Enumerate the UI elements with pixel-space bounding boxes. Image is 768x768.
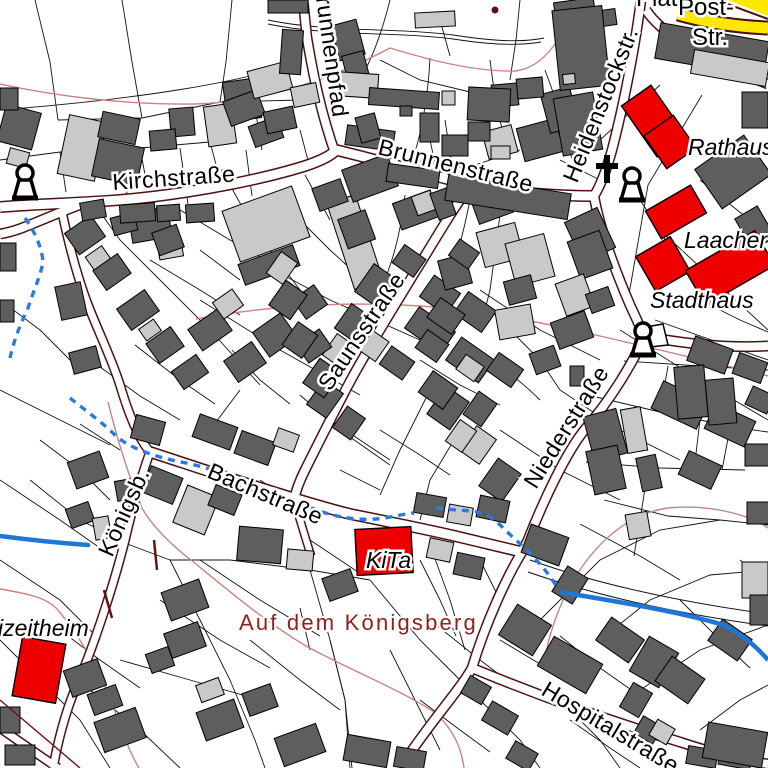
- svg-text:Stadthaus: Stadthaus: [650, 287, 754, 313]
- svg-text:Post-: Post-: [678, 0, 734, 21]
- svg-text:Laacher: Laacher: [684, 227, 768, 253]
- svg-text:KiTa: KiTa: [366, 547, 411, 573]
- svg-text:izeitheim: izeitheim: [0, 615, 89, 641]
- svg-text:Str.: Str.: [692, 24, 728, 51]
- svg-text:Rathaus: Rathaus: [688, 134, 768, 160]
- svg-text:Auf dem Königsberg: Auf dem Königsberg: [239, 610, 478, 635]
